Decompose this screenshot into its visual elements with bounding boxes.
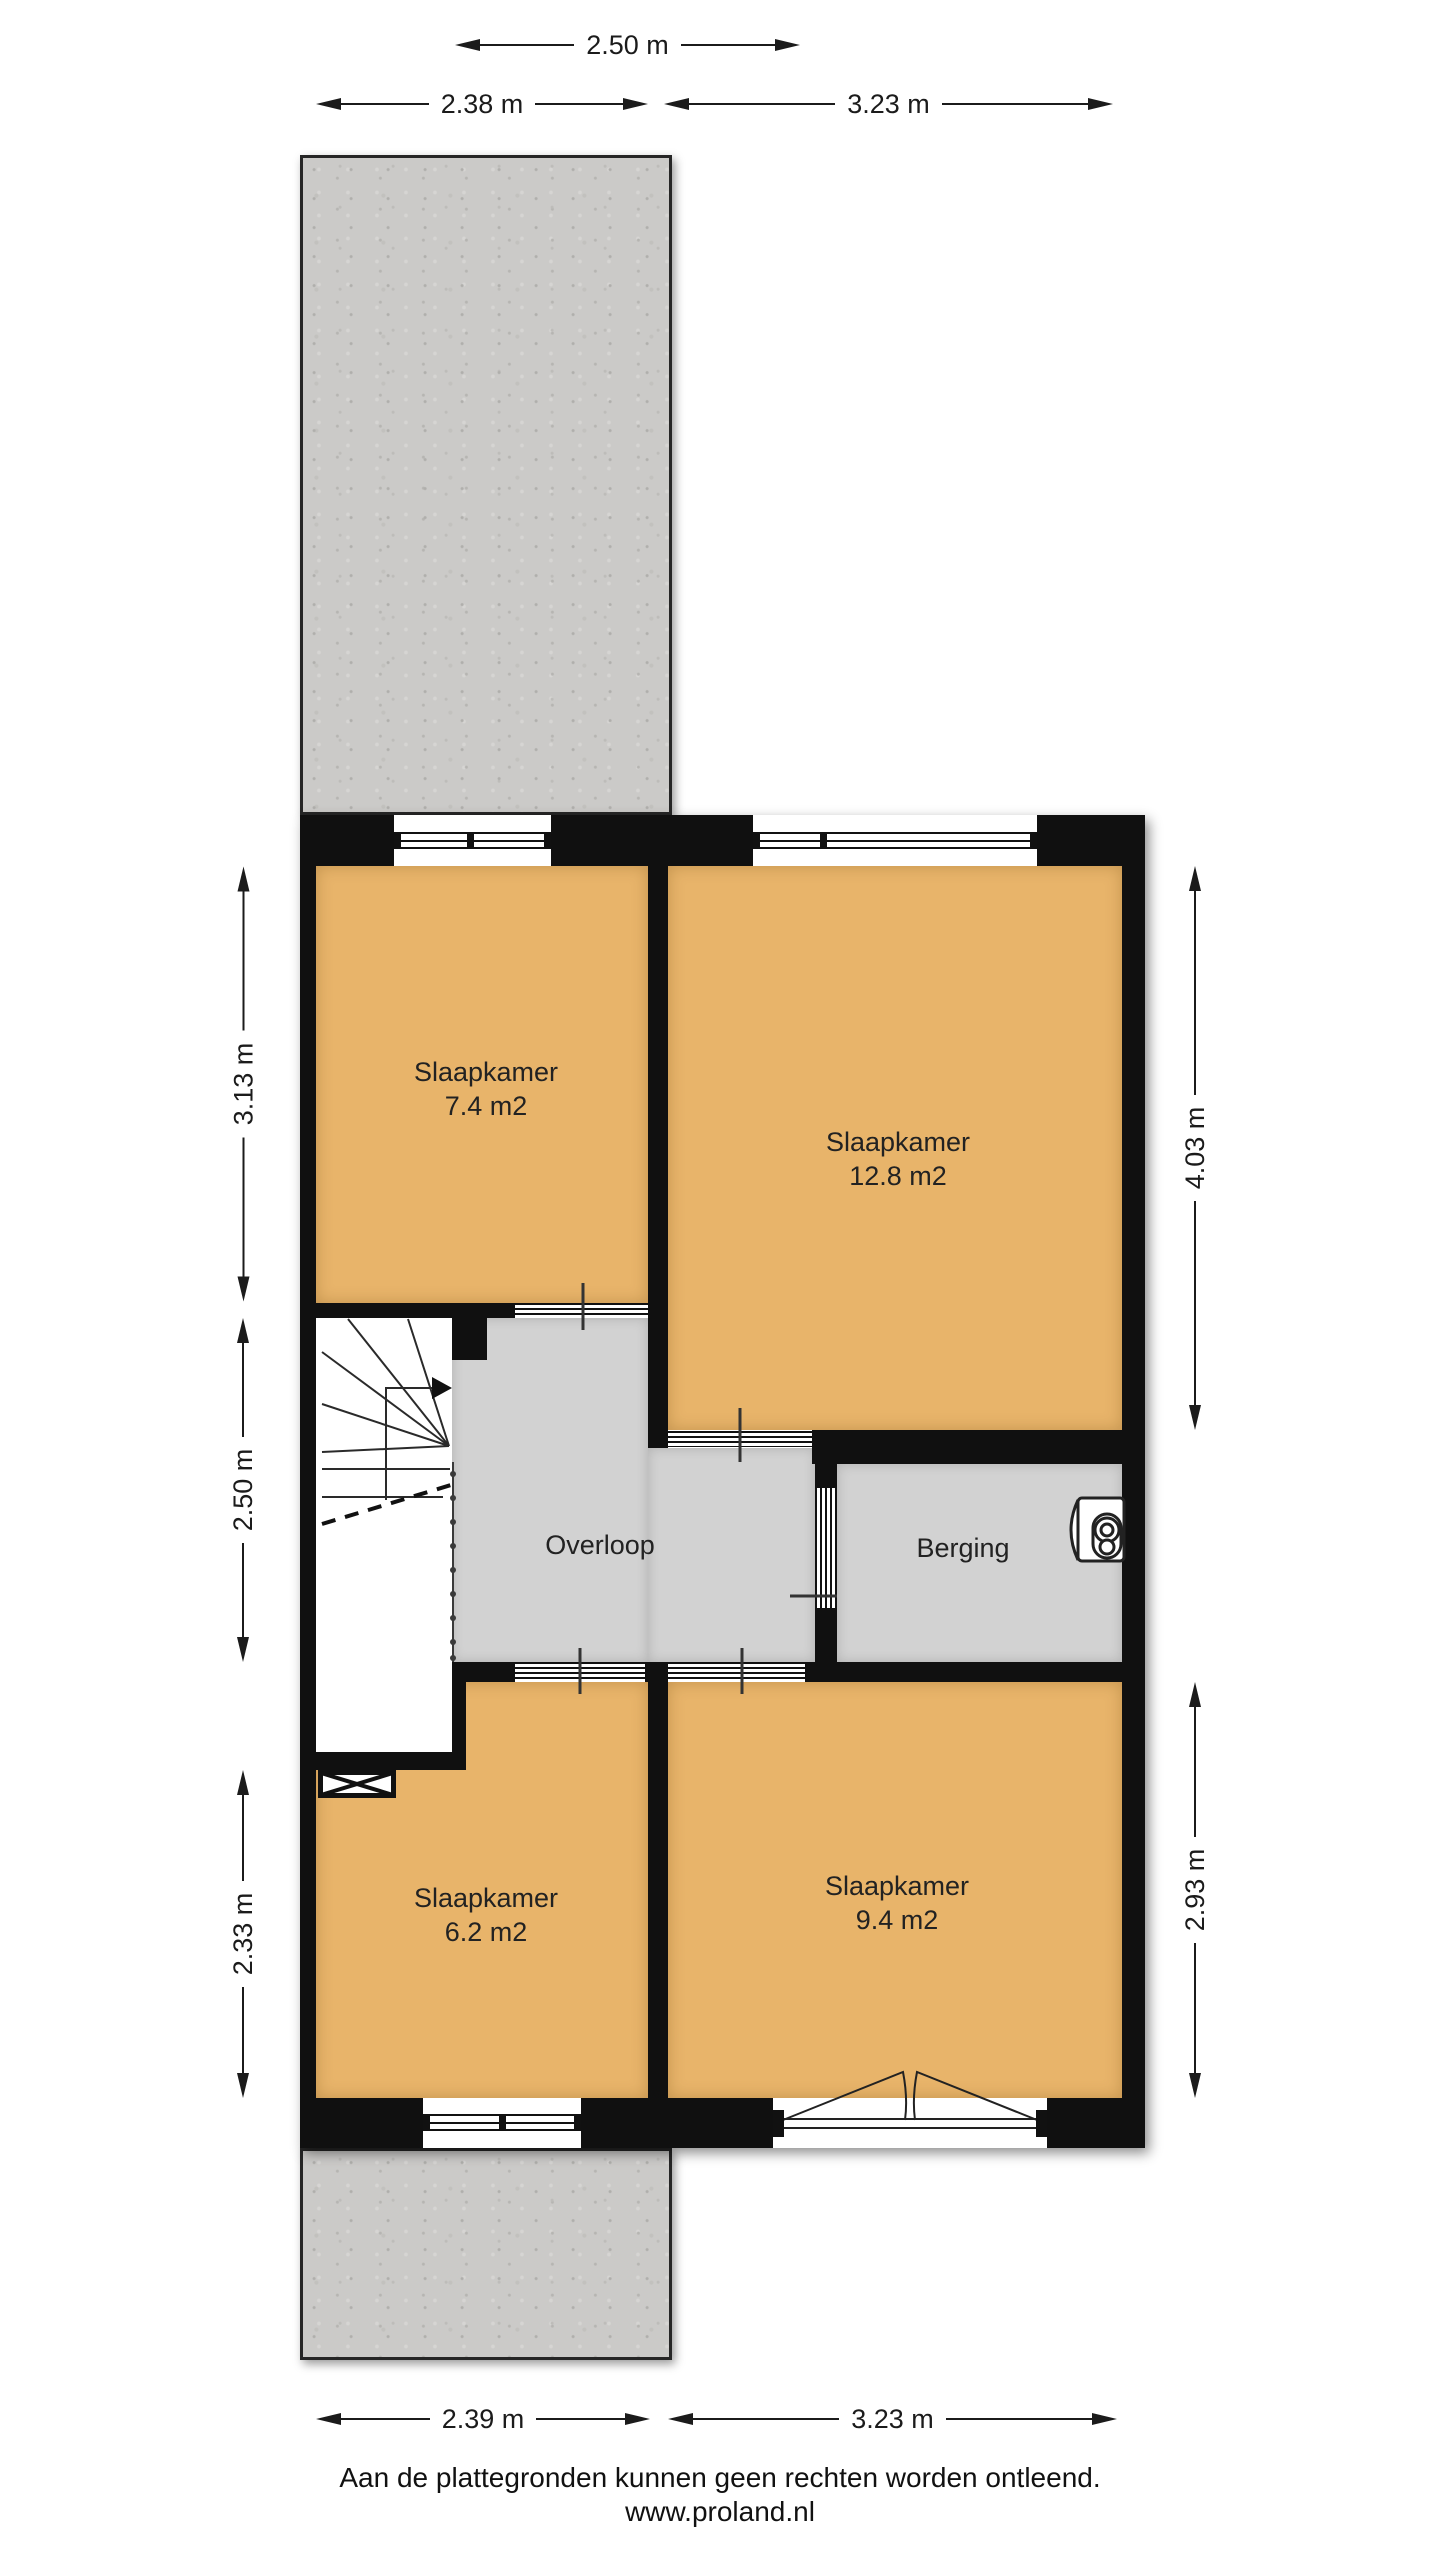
dim-label: 3.23 m [839, 2404, 946, 2435]
arrowhead-icon [237, 1770, 249, 1795]
door-bedroom-ne [668, 1431, 812, 1447]
wall [452, 1662, 466, 1752]
dim-label: 2.38 m [429, 89, 536, 120]
duct-box [318, 1770, 396, 1798]
dim-top-left: 2.38 m [316, 90, 648, 118]
wall [648, 1662, 668, 2148]
arrowhead-icon [664, 98, 689, 110]
window-mullion [467, 832, 474, 849]
wall [452, 1318, 487, 1360]
room-name: Slaapkamer [825, 1869, 969, 1903]
room-name: Overloop [545, 1528, 655, 1562]
roof-terrace-top [300, 155, 672, 815]
dim-label: 4.03 m [1180, 1095, 1211, 1202]
dim-top-right: 3.23 m [664, 90, 1113, 118]
dim-label: 2.50 m [228, 1437, 259, 1544]
room-name: Slaapkamer [826, 1125, 970, 1159]
room-landing-east [648, 1448, 815, 1662]
window-mullion [574, 2114, 581, 2131]
roof-terrace-bottom [300, 2148, 672, 2360]
arrowhead-icon [316, 98, 341, 110]
dim-label: 2.39 m [430, 2404, 537, 2435]
window-mullion [820, 832, 827, 849]
window-glass [753, 832, 1037, 849]
dim-left-middle: 2.50 m [229, 1318, 257, 1662]
wall [815, 1430, 837, 1488]
dim-label: 2.50 m [574, 30, 681, 61]
arrowhead-icon [238, 866, 250, 891]
arrowhead-icon [623, 98, 648, 110]
dim-bottom-left: 2.39 m [316, 2405, 650, 2433]
arrowhead-icon [1189, 866, 1201, 891]
window-mullion [753, 832, 760, 849]
label-bedroom-nw: Slaapkamer 7.4 m2 [414, 1055, 558, 1123]
dim-label: 3.13 m [228, 1031, 259, 1138]
door-bedroom-sw [515, 1662, 645, 1682]
arrowhead-icon [237, 1318, 249, 1343]
stairwell-void [316, 1318, 452, 1752]
arrowhead-icon [1088, 98, 1113, 110]
label-landing: Overloop [545, 1528, 655, 1562]
window-mullion [499, 2114, 506, 2131]
dim-left-lower: 2.33 m [229, 1770, 257, 2098]
room-name: Berging [916, 1531, 1009, 1565]
dim-right-upper: 4.03 m [1181, 866, 1209, 1430]
wall [1122, 815, 1145, 2148]
room-name: Slaapkamer [414, 1881, 558, 1915]
arrowhead-icon [455, 39, 480, 51]
wall [581, 2098, 773, 2148]
room-name: Slaapkamer [414, 1055, 558, 1089]
arrowhead-icon [316, 2413, 341, 2425]
label-bedroom-sw: Slaapkamer 6.2 m2 [414, 1881, 558, 1949]
room-area: 12.8 m2 [826, 1159, 970, 1193]
window-mullion [394, 832, 401, 849]
footer-disclaimer: Aan de plattegronden kunnen geen rechten… [0, 2462, 1440, 2494]
window-mullion [1030, 832, 1037, 849]
arrowhead-icon [1189, 1682, 1201, 1707]
label-bedroom-se: Slaapkamer 9.4 m2 [825, 1869, 969, 1937]
window-mullion [423, 2114, 430, 2131]
arrowhead-icon [1189, 1405, 1201, 1430]
wall [1047, 2098, 1145, 2148]
dim-label: 2.93 m [1180, 1837, 1211, 1944]
window-mullion [544, 832, 551, 849]
wall [300, 1752, 466, 1770]
footer-website: www.proland.nl [0, 2496, 1440, 2528]
arrowhead-icon [238, 1277, 250, 1302]
french-doors-bedroom-se [773, 2098, 1047, 2148]
arrowhead-icon [1189, 2073, 1201, 2098]
wall [805, 1662, 1122, 1682]
wall [300, 815, 316, 2148]
dim-left-upper: 3.13 m [230, 867, 258, 1302]
dim-bottom-right: 3.23 m [668, 2405, 1117, 2433]
dim-label: 3.23 m [835, 89, 942, 120]
arrowhead-icon [668, 2413, 693, 2425]
floorplan-canvas: 2.50 m 2.38 m 3.23 m [0, 0, 1440, 2560]
window-bedroom-sw [423, 2098, 581, 2148]
dim-top-overall: 2.50 m [455, 31, 800, 59]
room-area: 7.4 m2 [414, 1089, 558, 1123]
wall [812, 1430, 1122, 1464]
wall [300, 2098, 423, 2148]
window-bedroom-ne [753, 815, 1037, 866]
door-storage [815, 1488, 837, 1608]
wall [300, 1303, 515, 1318]
arrowhead-icon [625, 2413, 650, 2425]
arrowhead-icon [237, 1637, 249, 1662]
arrowhead-icon [775, 39, 800, 51]
door-bedroom-nw [515, 1303, 648, 1318]
room-area: 6.2 m2 [414, 1915, 558, 1949]
window-bedroom-nw [394, 815, 551, 866]
dim-right-lower: 2.93 m [1181, 1682, 1209, 2098]
label-storage: Berging [916, 1531, 1009, 1565]
label-bedroom-ne: Slaapkamer 12.8 m2 [826, 1125, 970, 1193]
wall [648, 815, 668, 1448]
dim-label: 2.33 m [228, 1881, 259, 1988]
arrowhead-icon [1092, 2413, 1117, 2425]
arrowhead-icon [237, 2073, 249, 2098]
room-area: 9.4 m2 [825, 1903, 969, 1937]
door-bedroom-se [668, 1662, 805, 1682]
room-landing [452, 1318, 648, 1662]
